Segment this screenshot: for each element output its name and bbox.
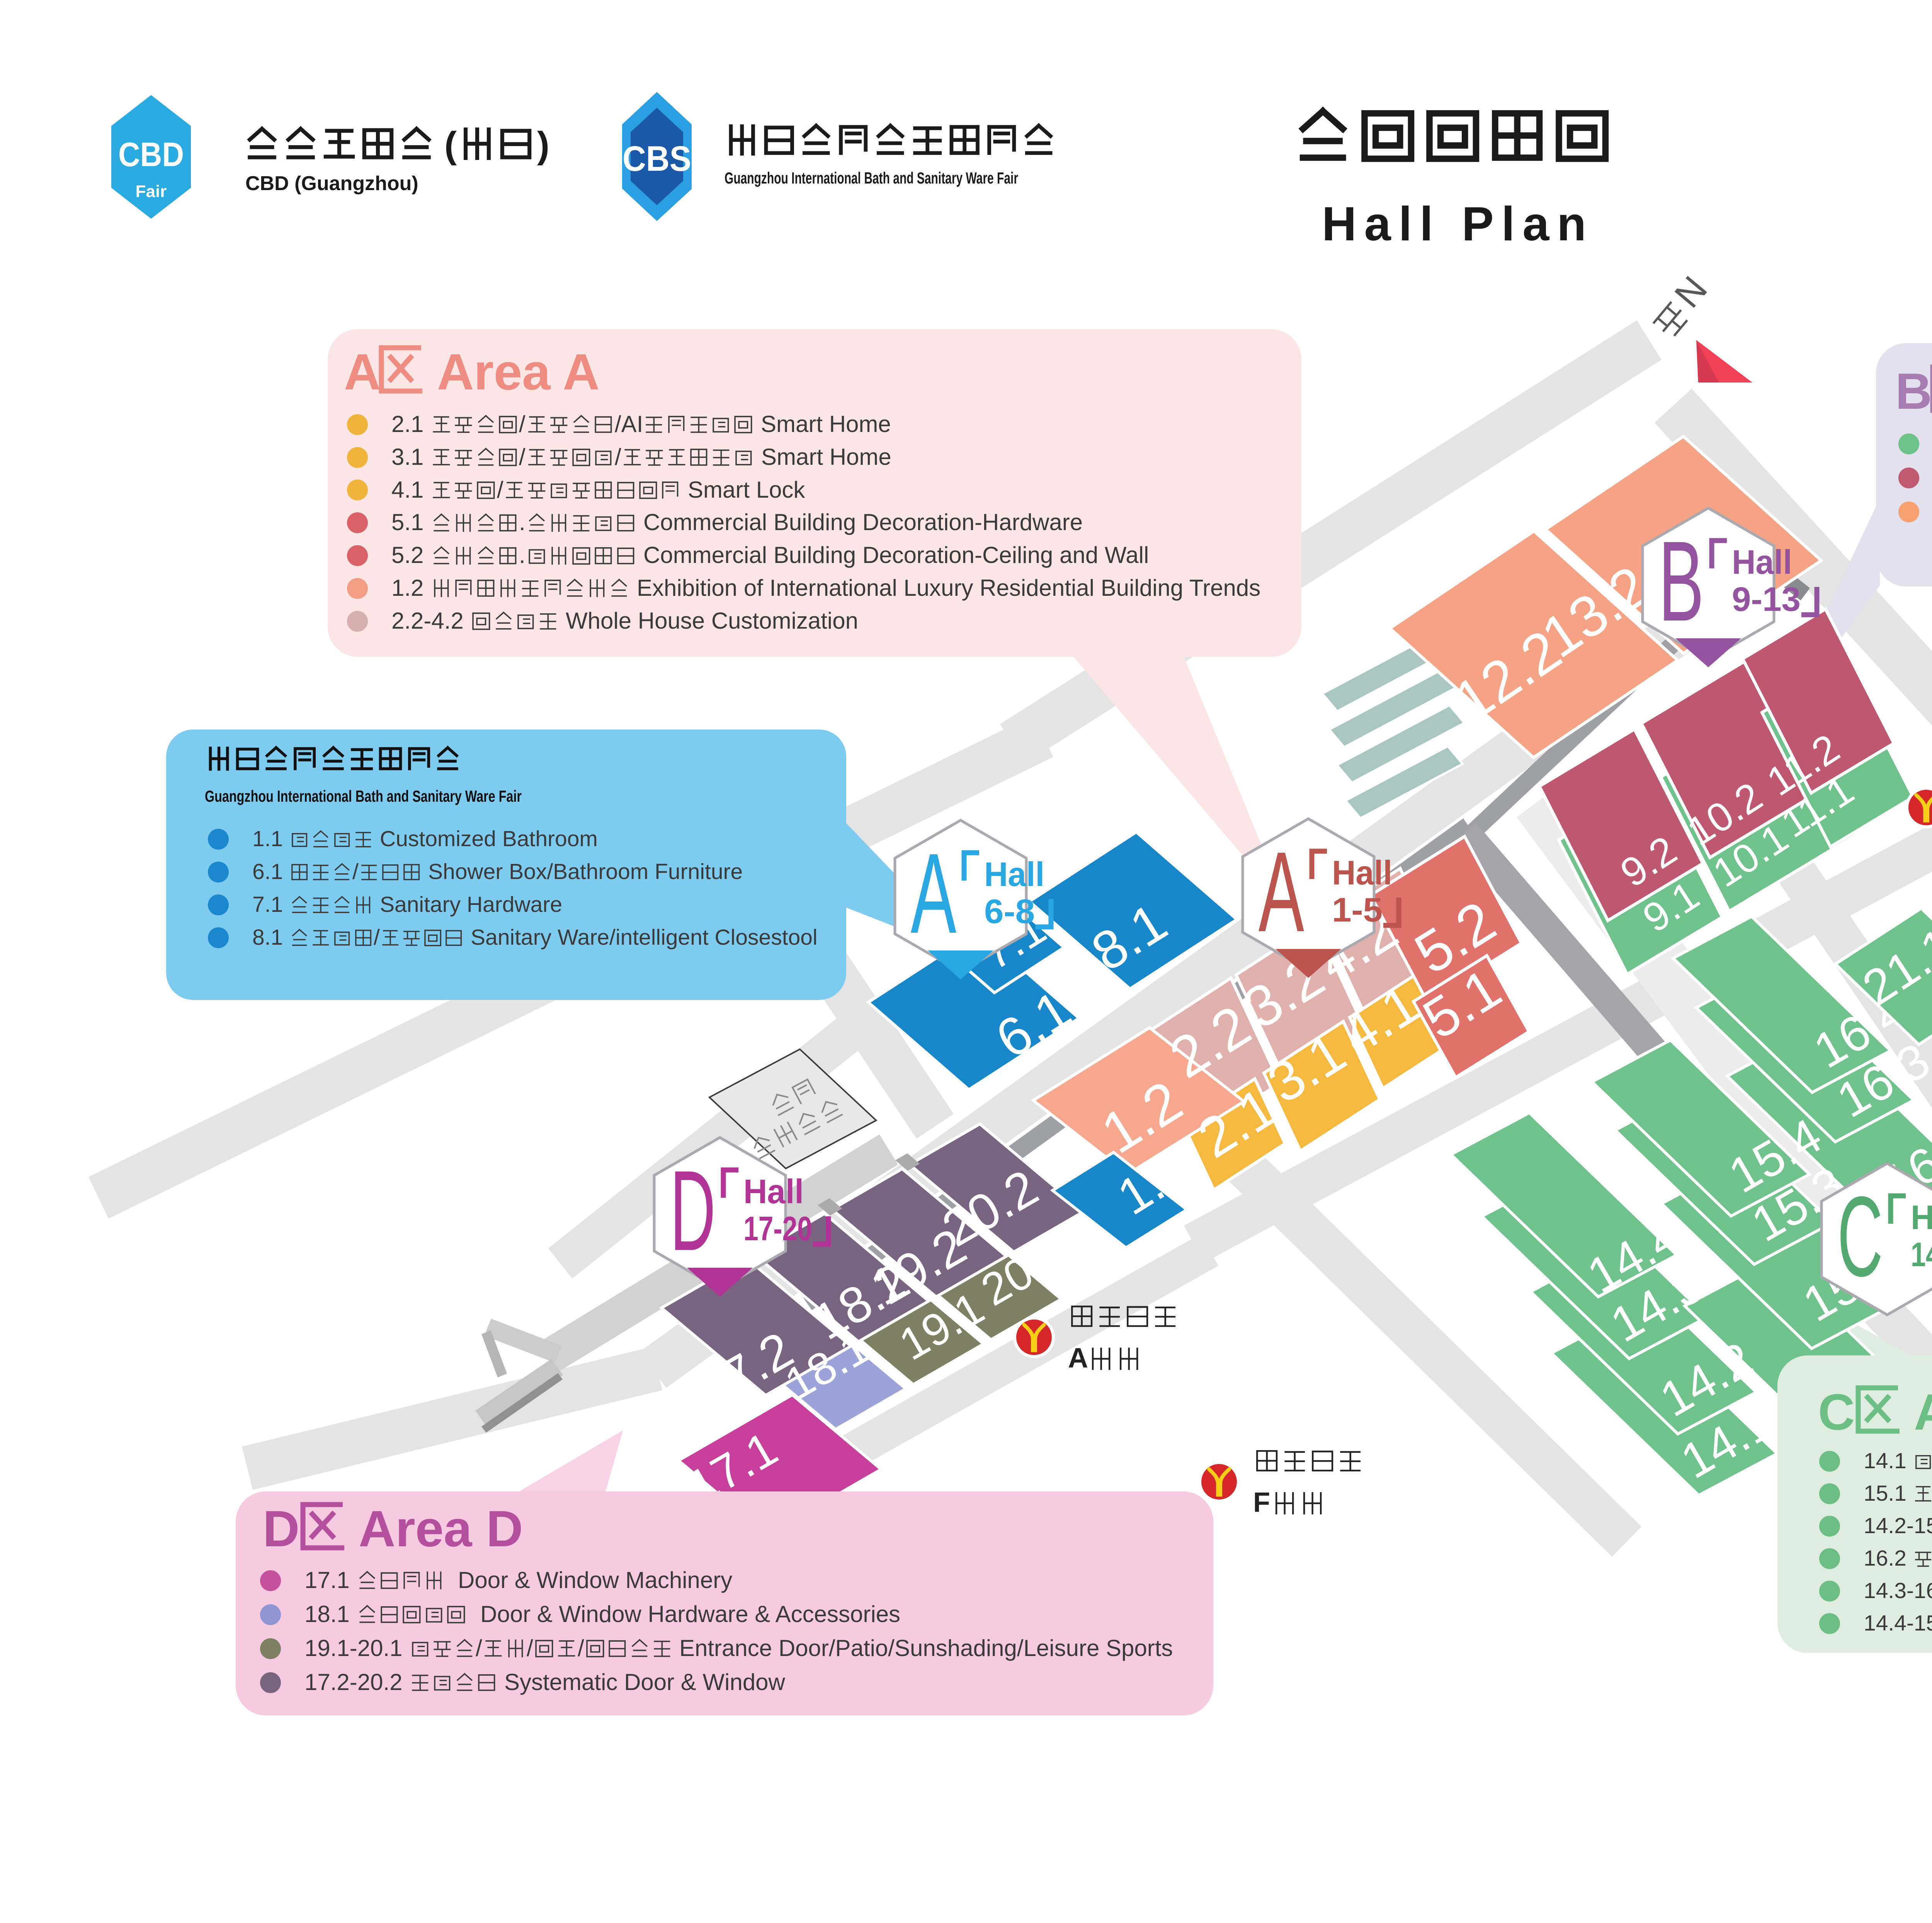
svg-text:Smart Lock: Smart Lock [688,477,805,503]
svg-text:): ) [537,124,549,166]
svg-text:Sanitary Ware/intelligent Clos: Sanitary Ware/intelligent Closestool [471,925,818,950]
svg-text:/: / [519,411,526,437]
svg-text:5.2: 5.2 [391,542,423,568]
svg-text:Entrance Door/Patio/Sunshading: Entrance Door/Patio/Sunshading/Leisure S… [679,1635,1173,1661]
svg-text:/: / [352,859,359,884]
svg-text:/: / [578,1635,584,1661]
svg-text:Hall: Hall [1911,1198,1932,1236]
svg-text:4.1: 4.1 [391,477,423,503]
svg-text:17.2-20.2: 17.2-20.2 [304,1669,403,1695]
svg-text:14.1: 14.1 [1864,1449,1906,1473]
svg-text:Area D: Area D [359,1500,523,1557]
svg-text:14-16: 14-16 [1911,1235,1932,1273]
svg-text:C: C [1818,1384,1855,1440]
svg-text:5.1: 5.1 [391,509,423,535]
svg-text:A: A [911,830,957,957]
svg-text:Commercial Building Decoration: Commercial Building Decoration-Hardware [643,509,1083,535]
svg-text:B: B [1658,517,1704,645]
svg-text:C: C [1837,1173,1883,1300]
svg-text:15.1: 15.1 [1864,1481,1906,1506]
svg-text:18.1: 18.1 [304,1601,350,1627]
svg-text:/: / [615,444,621,470]
svg-text:17.1: 17.1 [304,1567,350,1593]
svg-text:(: ( [444,124,457,166]
svg-text:Fair: Fair [136,182,167,201]
svg-text:.: . [519,509,526,535]
svg-text:7.1: 7.1 [252,892,283,917]
svg-text:19.1-20.1: 19.1-20.1 [304,1635,403,1661]
svg-text:Whole House Customization: Whole House Customization [566,608,858,634]
svg-text:1-5: 1-5 [1332,891,1383,929]
svg-text:Hall: Hall [1732,543,1792,581]
svg-text:/: / [527,1635,533,1661]
svg-text:/: / [476,1635,482,1661]
svg-text:CBS: CBS [622,139,691,179]
svg-text:14.3-16.3: 14.3-16.3 [1864,1578,1932,1603]
svg-text:6-8: 6-8 [984,892,1035,930]
svg-text:Area C: Area C [1914,1384,1932,1440]
svg-text:CBD (Guangzhou): CBD (Guangzhou) [245,172,418,195]
svg-text:A: A [344,343,381,400]
svg-text:2.2-4.2: 2.2-4.2 [391,608,464,634]
svg-text:Area A: Area A [437,343,600,400]
svg-text:Smart Home: Smart Home [761,411,891,437]
svg-text:/: / [519,444,526,470]
svg-text:/: / [497,477,503,503]
svg-text:Guangzhou International Bath a: Guangzhou International Bath and Sanitar… [205,787,522,805]
svg-text:14.4-15.4: 14.4-15.4 [1864,1611,1932,1636]
svg-text:D: D [263,1500,299,1557]
svg-text:Systematic Door & Window: Systematic Door & Window [504,1669,786,1695]
svg-text:B: B [1895,363,1932,420]
svg-text:D: D [670,1147,716,1274]
svg-text:F: F [1253,1487,1270,1518]
svg-text:Customized Bathroom: Customized Bathroom [380,826,598,851]
svg-text:6.1: 6.1 [252,859,283,884]
svg-text:Sanitary Hardware: Sanitary Hardware [380,892,562,917]
svg-text:Hall: Hall [743,1172,804,1211]
svg-text:Commercial Building Decoration: Commercial Building Decoration-Ceiling a… [643,542,1149,568]
svg-text:A: A [1068,1343,1088,1374]
svg-text:/AI: /AI [615,411,643,437]
svg-text:CBD: CBD [118,135,184,173]
svg-text:Door & Window Hardware & Acces: Door & Window Hardware & Accessories [480,1601,900,1627]
svg-text:1.2: 1.2 [391,575,423,601]
svg-text:2.1: 2.1 [391,411,423,437]
svg-text:17-20: 17-20 [743,1209,812,1248]
svg-text:14.2-15.2: 14.2-15.2 [1864,1513,1932,1538]
svg-text:Smart Home: Smart Home [761,444,891,470]
svg-text:A: A [1259,828,1304,956]
svg-text:9-13: 9-13 [1732,580,1801,618]
svg-text:/: / [374,925,380,950]
svg-text:3.1: 3.1 [391,444,423,470]
svg-text:Guangzhou International Bath a: Guangzhou International Bath and Sanitar… [724,169,1018,187]
svg-text:Exhibition of International Lu: Exhibition of International Luxury Resid… [637,575,1260,601]
svg-text:Door & Window Machinery: Door & Window Machinery [458,1567,732,1593]
svg-text:16.2: 16.2 [1864,1546,1906,1571]
svg-text:Hall: Hall [984,855,1044,893]
svg-text:.: . [519,542,526,568]
svg-text:Shower Box/Bathroom Furniture: Shower Box/Bathroom Furniture [428,859,743,884]
svg-text:8.1: 8.1 [252,925,283,950]
svg-text:1.1: 1.1 [252,826,283,851]
svg-text:Hall: Hall [1332,854,1392,892]
